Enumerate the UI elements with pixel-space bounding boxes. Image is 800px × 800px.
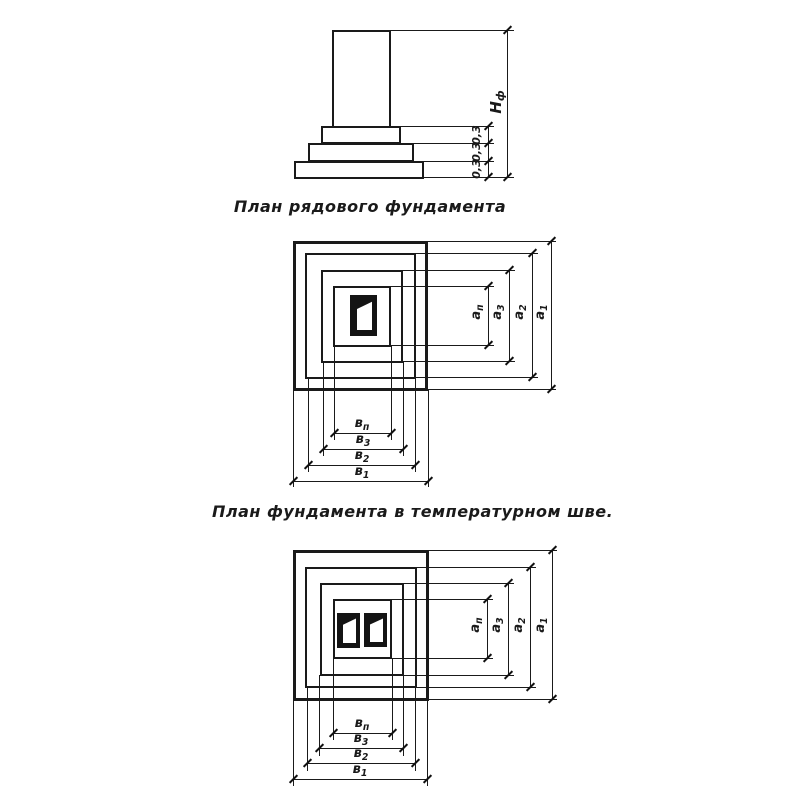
extension-line [417,567,536,568]
column-rect [332,30,391,128]
socket-hole [357,300,372,330]
dim-line-a-2 [530,567,531,688]
dim-label-a-2: а2 [512,295,528,329]
elevation-height-dim-label: Нф [488,85,504,119]
dim-label-a-2: а2 [511,608,527,642]
extension-line [391,286,494,287]
extension-line [416,253,538,254]
extension-line [392,599,493,600]
extension-line [415,687,416,771]
extension-line [429,699,557,700]
dim-label-b-2: в2 [341,746,381,762]
foundation-step-3 [294,161,424,179]
extension-line [392,659,393,740]
dim-label-a-p: ап [468,608,484,642]
extension-line [391,345,392,440]
extension-line [429,550,557,551]
dim-label-b-1: в1 [342,464,382,480]
extension-line [319,675,320,756]
extension-line [428,390,429,487]
foundation-step-1 [321,126,401,144]
column-socket-opening-right [364,613,387,647]
dim-label-b-3: в3 [343,432,383,448]
dim-label-b-2: в2 [342,448,382,464]
dim-line-b-1 [293,481,428,482]
extension-line [403,361,515,362]
extension-line [293,700,294,786]
extension-line [427,700,428,786]
extension-line [404,675,514,676]
extension-line [417,687,536,688]
dim-label-a-1: а1 [533,295,549,329]
drawing-canvas: 0,3 0,3 0,3 Нф План рядового фундамента [0,0,800,800]
socket-hole [370,617,383,642]
dim-label-a-1: а1 [533,608,549,642]
extension-line [323,362,324,456]
dim-label-b-p: вп [342,716,382,732]
extension-line [391,345,494,346]
extension-line [392,658,493,659]
dim-label-b-3: в3 [341,731,381,747]
dim-line-nf [507,30,508,178]
extension-line [334,345,335,440]
extension-line [416,377,538,378]
extension-line [428,241,556,242]
dim-label-a-3: а3 [490,295,506,329]
dim-label-a-p: ап [469,295,485,329]
extension-line [403,675,404,756]
extension-line [293,390,294,487]
extension-line [404,583,514,584]
extension-line [308,378,309,472]
socket-hole [343,617,356,643]
caption-plan-joint: План фундамента в температурном шве. [212,502,592,521]
column-socket-opening [350,295,377,336]
extension-line [403,270,515,271]
extension-line [307,687,308,771]
dim-line-b-1 [293,779,427,780]
column-socket-opening-left [337,613,360,648]
extension-line [415,378,416,472]
foundation-step-2 [308,143,414,162]
dim-line-a-3 [508,583,509,675]
extension-line [403,362,404,456]
extension-line [333,659,334,740]
dim-line-a-3 [509,270,510,362]
step-height-label-3: 0,3 [469,152,485,186]
extension-line [428,389,556,390]
dim-label-b-1: в1 [340,762,380,778]
dim-line-steps [488,126,489,178]
caption-plan-single: План рядового фундамента [225,197,515,216]
dim-line-a-1 [551,241,552,390]
extension-line [391,30,514,31]
dim-line-a-1 [552,550,553,700]
dim-label-b-p: вп [342,416,382,432]
dim-label-a-3: а3 [489,608,505,642]
